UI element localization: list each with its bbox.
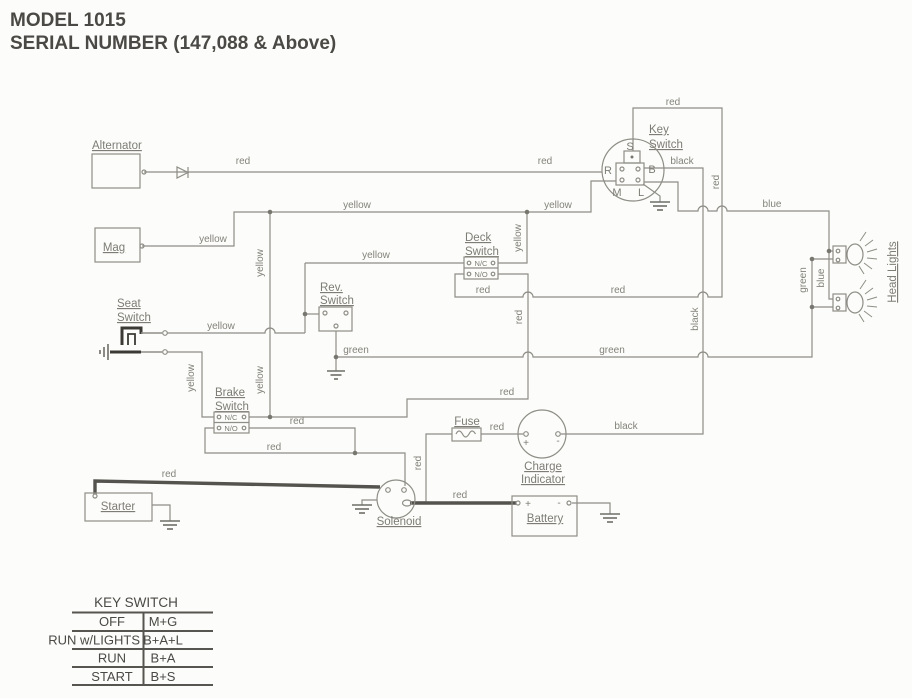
wire-label-red: red	[453, 490, 467, 501]
mag: Mag	[95, 228, 144, 262]
key-terminal-L: L	[638, 187, 644, 199]
lamp-icon	[833, 280, 877, 322]
junction-dots	[268, 210, 832, 456]
wire-label-red: red	[711, 175, 722, 189]
wire-red-brake-solenoid	[205, 428, 405, 486]
ground-icon	[600, 514, 620, 522]
table-cell-circuit: B+A+L	[143, 633, 183, 648]
wire-label-yellow: yellow	[255, 365, 266, 394]
brake-terminal	[217, 426, 221, 430]
fuse-label: Fuse	[454, 416, 480, 428]
wire-label-red: red	[611, 285, 625, 296]
rev-switch-label: Rev.	[320, 282, 343, 294]
wire-red-brake-right	[249, 428, 355, 453]
fuse: Fuse	[452, 416, 481, 441]
starter-terminal	[93, 494, 97, 498]
junction	[525, 210, 530, 215]
charge-minus-label: -	[556, 436, 559, 447]
ground-icon	[352, 505, 372, 513]
junction	[334, 355, 339, 360]
deck-switch-label: Switch	[465, 246, 499, 258]
wire-label-red: red	[666, 97, 680, 108]
wire-label-yellow: yellow	[343, 200, 372, 211]
starter-label: Starter	[101, 501, 136, 513]
head-lights: Head Lights	[833, 232, 899, 322]
wire-green-bus	[336, 259, 833, 357]
charge-indicator: + - Charge Indicator	[518, 410, 566, 486]
wire-label-red: red	[500, 387, 514, 398]
wire-label-red: red	[413, 456, 424, 470]
wire-label-green: green	[343, 345, 369, 356]
page-title-model: MODEL 1015	[10, 10, 126, 31]
junction	[353, 451, 358, 456]
deck-switch-label: Deck	[465, 232, 491, 244]
battery-terminal-minus	[567, 501, 571, 505]
page-title-serial: SERIAL NUMBER (147,088 & Above)	[10, 33, 336, 54]
battery-label: Battery	[527, 513, 564, 525]
table-cell-circuit: M+G	[149, 614, 178, 629]
charge-indicator-body	[518, 410, 566, 458]
seat-contact-bottom	[163, 350, 168, 355]
wire-label-yellow: yellow	[362, 250, 391, 261]
charge-plus-label: +	[523, 438, 529, 449]
wire-label-red: red	[162, 469, 176, 480]
key-contact	[636, 167, 640, 171]
key-terminal-S: S	[626, 141, 633, 153]
wires	[95, 108, 833, 521]
deck-switch: Deck Switch N/C N/O	[464, 232, 499, 279]
brake-terminal	[242, 426, 246, 430]
fuse-element-icon	[456, 431, 476, 437]
wire-yellow-seat-top	[167, 328, 305, 333]
brake-switch-label: Brake	[215, 387, 245, 399]
alternator: Alternator	[92, 140, 188, 188]
table-cell-position: RUN w/LIGHTS	[48, 633, 140, 648]
ground-icon	[100, 344, 108, 360]
wire-red-bus-deck-keyS	[455, 108, 722, 297]
table-cell-position: OFF	[99, 614, 125, 629]
wire-key-ground	[643, 184, 660, 202]
brake-no-label: N/O	[224, 424, 238, 433]
table-cell-circuit: B+A	[151, 651, 176, 666]
fuse-box	[452, 428, 481, 441]
mag-label: Mag	[103, 242, 125, 254]
wire-label-yellow: yellow	[207, 321, 236, 332]
key-switch-s-dot	[631, 156, 634, 159]
deck-nc-label: N/C	[475, 259, 489, 268]
wire-label-yellow: yellow	[255, 248, 266, 277]
wire-label-green: green	[798, 267, 809, 293]
lamp-icon	[833, 232, 877, 274]
wire-labels: yellow yellow yellow yellow yellow yello…	[162, 97, 827, 501]
wire-label-yellow: yellow	[513, 223, 524, 252]
deck-no-label: N/O	[474, 270, 488, 279]
rev-switch-label: Switch	[320, 295, 354, 307]
brake-terminal	[242, 415, 246, 419]
scanned-wiring-diagram-page: MODEL 1015 SERIAL NUMBER (147,088 & Abov…	[0, 0, 912, 698]
deck-terminal	[467, 261, 471, 265]
wire-label-red: red	[490, 422, 504, 433]
wire-label-red: red	[538, 156, 552, 167]
brake-nc-label: N/C	[225, 413, 239, 422]
starter: Starter	[85, 493, 180, 529]
wire-label-red: red	[267, 442, 281, 453]
charge-terminal-plus	[524, 432, 529, 437]
key-switch: Key Switch R S B M L	[602, 124, 683, 210]
junction	[810, 305, 815, 310]
deck-terminal	[491, 261, 495, 265]
wire-battery-ground	[572, 503, 610, 514]
seat-switch-symbol	[122, 328, 141, 345]
wire-label-red: red	[236, 156, 250, 167]
charge-indicator-label: Charge	[524, 461, 562, 473]
solenoid-label: Solenoid	[377, 516, 422, 528]
rev-terminal	[334, 324, 338, 328]
key-terminal-B: B	[648, 164, 655, 176]
charge-indicator-label: Indicator	[521, 474, 565, 486]
key-switch-table: KEY SWITCH OFF M+G RUN w/LIGHTS B+A+L RU…	[48, 595, 213, 685]
table-cell-position: RUN	[98, 651, 126, 666]
solenoid-terminal	[386, 488, 391, 493]
battery-minus-label: -	[557, 498, 560, 509]
wire-label-red: red	[290, 416, 304, 427]
junction	[827, 249, 832, 254]
deck-terminal	[491, 272, 495, 276]
wire-label-yellow: yellow	[186, 363, 197, 392]
wire-label-red: red	[514, 310, 525, 324]
wire-label-red: red	[476, 285, 490, 296]
seat-switch: Seat Switch	[100, 298, 167, 360]
ground-icon	[327, 371, 345, 379]
rev-terminal	[323, 311, 327, 315]
rev-terminal	[344, 311, 348, 315]
key-terminal-M: M	[612, 187, 621, 199]
brake-switch: Brake Switch N/C N/O	[214, 387, 249, 433]
wire-label-yellow: yellow	[544, 200, 573, 211]
seat-contact-top	[163, 331, 168, 336]
wire-starter-ground	[152, 505, 170, 521]
table-cell-circuit: B+S	[151, 669, 176, 684]
battery-plus-label: +	[525, 499, 531, 510]
wiring-diagram: MODEL 1015 SERIAL NUMBER (147,088 & Abov…	[0, 0, 912, 698]
alternator-label: Alternator	[92, 140, 142, 152]
key-terminal-R: R	[604, 165, 612, 177]
key-switch-label: Key	[649, 124, 669, 136]
battery-terminal-plus	[516, 501, 520, 505]
table-cell-position: START	[91, 669, 132, 684]
wire-label-blue: blue	[816, 268, 827, 287]
alternator-box	[92, 154, 140, 188]
title-block: MODEL 1015 SERIAL NUMBER (147,088 & Abov…	[10, 10, 336, 54]
solenoid-terminal	[402, 488, 407, 493]
ground-icon	[160, 521, 180, 529]
wire-label-black: black	[690, 306, 701, 330]
junction	[268, 210, 273, 215]
brake-terminal	[217, 415, 221, 419]
key-contact	[620, 178, 624, 182]
ground-icon	[650, 202, 670, 210]
wire-label-blue: blue	[763, 199, 782, 210]
wire-label-green: green	[599, 345, 625, 356]
deck-terminal	[467, 272, 471, 276]
table-title: KEY SWITCH	[94, 595, 178, 610]
seat-switch-symbol-inner	[128, 334, 135, 345]
battery: + - Battery	[512, 496, 620, 536]
brake-switch-label: Switch	[215, 401, 249, 413]
seat-switch-label: Switch	[117, 312, 151, 324]
cable-starter-solenoid	[95, 481, 380, 494]
key-contact	[620, 167, 624, 171]
junction	[268, 415, 273, 420]
junction	[810, 257, 815, 262]
key-switch-label: Switch	[649, 139, 683, 151]
wire-label-yellow: yellow	[199, 234, 228, 245]
key-contact	[636, 178, 640, 182]
junction	[303, 312, 308, 317]
seat-switch-label: Seat	[117, 298, 141, 310]
wire-label-black: black	[614, 421, 638, 432]
wire-black-keyB-charge	[561, 168, 703, 434]
wire-label-black: black	[670, 156, 694, 167]
solenoid-body	[377, 480, 415, 518]
head-lights-label: Head Lights	[887, 241, 899, 303]
